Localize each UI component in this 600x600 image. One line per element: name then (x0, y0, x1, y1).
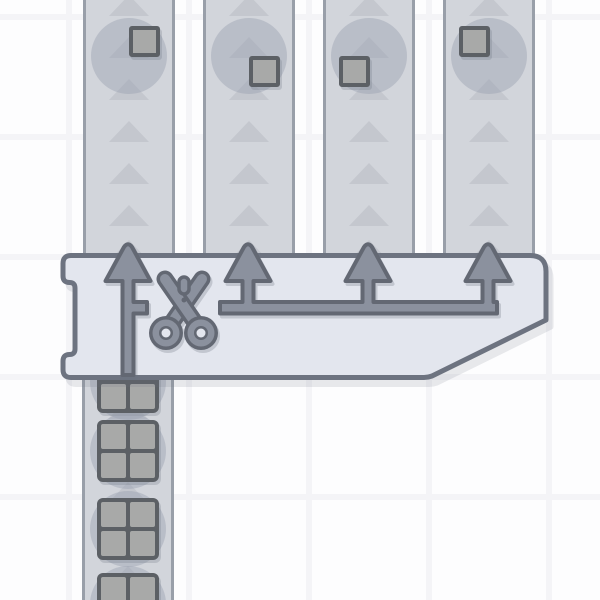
item-quadrant-cell (101, 453, 126, 478)
belt-arrow-icon (229, 0, 269, 16)
item-square-quadrant-top-right (129, 26, 160, 57)
item-quadrant-cell (101, 384, 126, 409)
item-quadrant-cell (101, 424, 126, 449)
belt-arrow-icon (109, 240, 149, 261)
item-square-full (97, 498, 159, 560)
item-quadrant-cell (101, 577, 126, 600)
belt-arrow-icon (229, 163, 269, 184)
item-quadrant-cell (130, 531, 155, 556)
belt-arrow-icon (229, 240, 269, 261)
belt-arrow-icon (349, 0, 389, 16)
conveyor-output-belt-3[interactable] (323, 0, 415, 258)
scissors-icon (149, 277, 218, 350)
factory-viewport (0, 0, 600, 600)
belt-arrow-icon (469, 163, 509, 184)
item-quadrant-cell (101, 531, 126, 556)
belt-arrow-icon (469, 0, 509, 16)
belt-arrow-icon (349, 240, 389, 261)
item-quadrant-cell (130, 424, 155, 449)
belt-arrow-icon (349, 163, 389, 184)
belt-arrow-icon (229, 121, 269, 142)
flow-arrows (106, 244, 511, 375)
item-quadrant-cell (101, 502, 126, 527)
item-square-full (97, 573, 159, 600)
item-square-quadrant-bottom-left (339, 56, 370, 87)
belt-arrow-icon (109, 121, 149, 142)
item-quadrant-cell (130, 502, 155, 527)
item-quadrant-cell (130, 384, 155, 409)
belt-arrow-icon (349, 205, 389, 226)
item-square-full (97, 351, 159, 413)
item-square-quadrant-top-left (459, 26, 490, 57)
item-quadrant-cell (101, 355, 126, 380)
belt-arrow-icon (109, 163, 149, 184)
belt-arrow-icon (229, 205, 269, 226)
belt-arrow-icon (349, 121, 389, 142)
belt-arrow-icon (469, 205, 509, 226)
item-quadrant-cell (130, 355, 155, 380)
item-quadrant-cell (130, 453, 155, 478)
conveyor-output-belt-1[interactable] (83, 0, 175, 258)
belt-arrow-icon (109, 0, 149, 16)
belt-arrow-icon (469, 121, 509, 142)
item-quadrant-cell (130, 577, 155, 600)
item-square-quadrant-bottom-right (249, 56, 280, 87)
conveyor-output-belt-2[interactable] (203, 0, 295, 258)
conveyor-input-belt[interactable] (82, 374, 174, 600)
conveyor-output-belt-4[interactable] (443, 0, 535, 258)
belt-arrow-icon (109, 205, 149, 226)
item-square-full (97, 420, 159, 482)
belt-arrow-icon (469, 240, 509, 261)
